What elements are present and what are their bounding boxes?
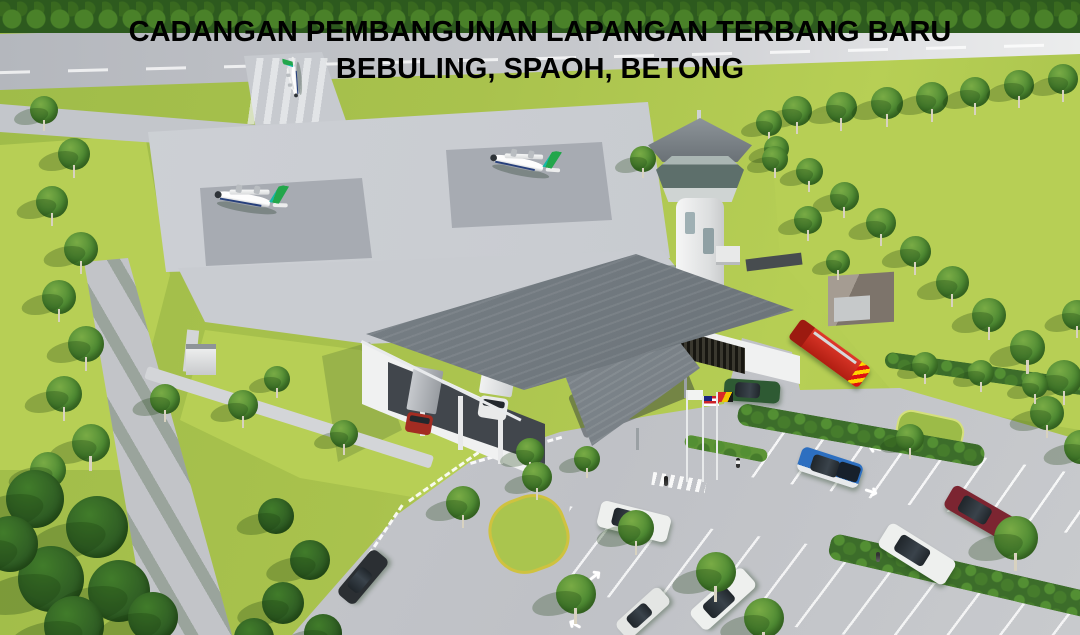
aircraft-stabilizer [546, 168, 561, 173]
person [736, 458, 740, 468]
tree [228, 390, 258, 420]
tree [522, 462, 552, 492]
tree [618, 510, 654, 546]
utility-hut [716, 246, 740, 265]
sarawak-flag [718, 392, 733, 402]
fire-truck-chevrons [848, 362, 872, 388]
tree [556, 574, 596, 614]
tree [1022, 372, 1048, 398]
tree [756, 110, 782, 136]
tree [762, 146, 788, 172]
tree [72, 424, 110, 462]
fire-station-door [834, 295, 870, 322]
person [876, 552, 880, 562]
tree [696, 552, 736, 592]
tree [30, 96, 58, 124]
tree [66, 496, 128, 558]
flag-pole [686, 390, 688, 482]
tree [866, 208, 896, 238]
tree [968, 360, 994, 386]
flag-pole [702, 396, 704, 482]
tree [1010, 330, 1045, 365]
tree [262, 582, 304, 624]
tree [796, 158, 823, 185]
fire-truck-cab [788, 318, 815, 347]
tree [744, 598, 784, 635]
tree [1046, 360, 1080, 396]
tree [150, 384, 180, 414]
tree [128, 592, 178, 635]
tree [826, 250, 850, 274]
tree [264, 366, 290, 392]
person [664, 476, 668, 486]
tree [42, 280, 76, 314]
tree [826, 92, 857, 123]
tree [46, 376, 82, 412]
tree [830, 182, 859, 211]
tree [58, 138, 90, 170]
tree [258, 498, 294, 534]
tree [574, 446, 600, 472]
canopy-post [636, 428, 639, 450]
tree [330, 420, 358, 448]
tree [446, 486, 480, 520]
pickup-bed [836, 461, 862, 483]
title-line-2: BEBULING, SPAOH, BETONG [0, 51, 1080, 88]
tree [972, 298, 1006, 332]
truck-windshield [409, 415, 430, 424]
tree [68, 326, 104, 362]
tree [794, 206, 822, 234]
tower-roof [648, 118, 752, 162]
tree [936, 266, 969, 299]
tree [1064, 430, 1080, 464]
tree [64, 232, 98, 266]
title-overlay: CADANGAN PEMBANGUNAN LAPANGAN TERBANG BA… [0, 14, 1080, 88]
flag-pole [716, 392, 718, 480]
tree [1062, 300, 1080, 330]
truck-cab [404, 412, 433, 436]
tree [782, 96, 812, 126]
tree [290, 540, 330, 580]
title-line-1: CADANGAN PEMBANGUNAN LAPANGAN TERBANG BA… [0, 14, 1080, 51]
bay-column [458, 396, 463, 450]
tower-glass-cab [656, 156, 744, 202]
tree [896, 424, 924, 452]
tree [900, 236, 931, 267]
aircraft-stabilizer [273, 203, 288, 208]
tree [994, 516, 1038, 560]
car-windows [735, 382, 761, 399]
airport-aerial-rendering: ➜ ➜ ➜ ➜ ➜ [0, 0, 1080, 635]
utility-hut [186, 344, 216, 375]
tree [36, 186, 68, 218]
white-flag [688, 390, 703, 400]
tree [912, 352, 938, 378]
tree [630, 146, 656, 172]
